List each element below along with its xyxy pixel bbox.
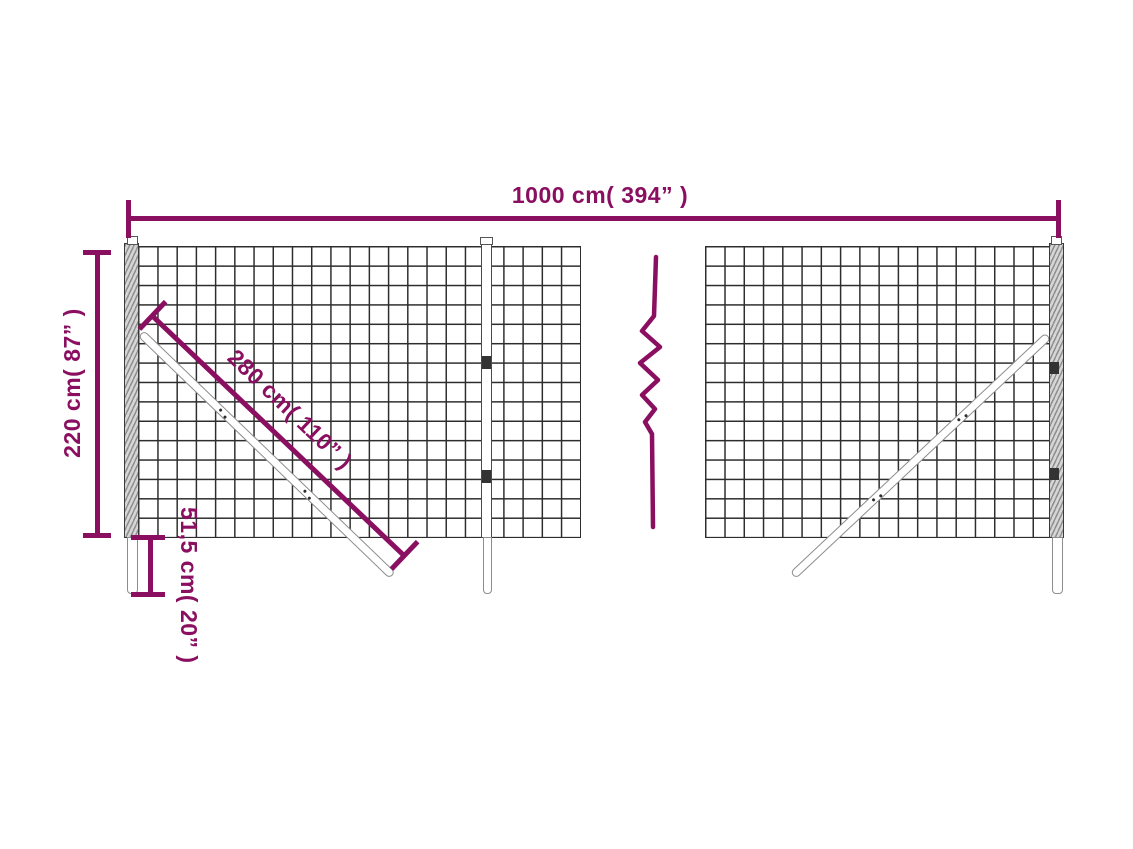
brace-bolt-dot [956, 417, 960, 421]
brace-bolt-dot [878, 493, 882, 497]
brace-bolt-dot [308, 496, 312, 500]
dimension-width-label: 1000 cm( 394” ) [440, 182, 760, 209]
dimension-width-tick-left [126, 200, 131, 238]
dimension-depth-line [148, 537, 153, 595]
brace-bolt-dot [223, 415, 227, 419]
dimension-height-tick-bottom [83, 533, 111, 538]
brace-bolt-dot [871, 497, 875, 501]
post-ground-spike-right [1052, 537, 1063, 594]
dimension-width-line [128, 216, 1060, 221]
dimension-depth-tick-top [131, 535, 165, 540]
brace-bolt-dot [303, 489, 307, 493]
dimension-depth-tick-bottom [131, 592, 165, 597]
post-clamp [482, 470, 491, 483]
dimension-height-label: 220 cm( 87” ) [59, 273, 89, 493]
post-cap-middle [480, 237, 493, 245]
fence-post-middle [481, 243, 492, 538]
brace-bolt-dot [219, 408, 223, 412]
fence-post-left [124, 243, 139, 538]
dimension-height-line [95, 252, 100, 536]
dimension-depth-label: 51,5 cm( 20” ) [172, 507, 202, 657]
brace-bolt-dot [964, 413, 968, 417]
fence-post-right [1049, 243, 1064, 538]
post-clamp [1050, 362, 1059, 374]
post-clamp [1050, 468, 1059, 480]
dimension-width-tick-right [1056, 200, 1061, 238]
post-ground-spike-left [127, 537, 138, 594]
dimension-brace-tick-bottom [390, 540, 419, 571]
fence-dimension-diagram: 1000 cm( 394” ) 220 cm( 87” ) 280 cm( 11… [0, 0, 1133, 849]
dimension-height-tick-top [83, 250, 111, 255]
post-clamp [482, 356, 491, 369]
post-ground-spike-middle [483, 537, 492, 594]
